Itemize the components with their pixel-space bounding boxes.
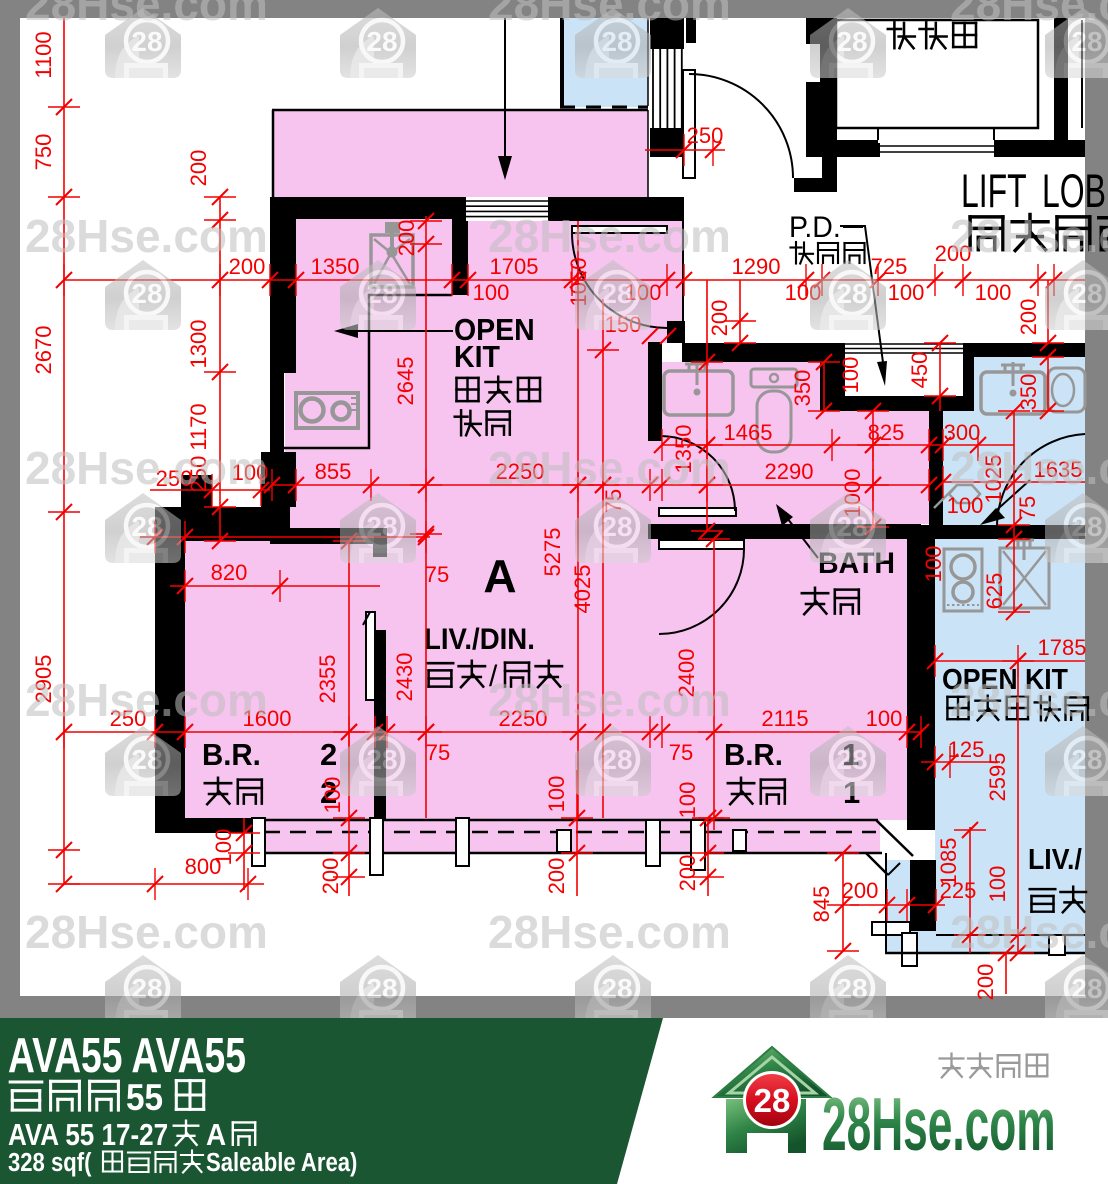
svg-text:75: 75 [669, 740, 693, 765]
svg-text:855: 855 [315, 459, 352, 484]
svg-text:100: 100 [544, 776, 569, 813]
svg-text:100: 100 [473, 280, 510, 305]
svg-text:100: 100 [866, 706, 903, 731]
svg-text:Saleable Area): Saleable Area) [206, 1148, 357, 1177]
svg-text:28Hse.com: 28Hse.com [488, 210, 731, 262]
svg-text:B.R.: B.R. [724, 738, 783, 772]
svg-text:625: 625 [982, 573, 1007, 610]
svg-text:725: 725 [871, 254, 908, 279]
svg-text:28Hse.com: 28Hse.com [488, 906, 731, 958]
svg-text:1085: 1085 [936, 838, 961, 887]
svg-text:100: 100 [985, 866, 1010, 903]
svg-text:LIV./: LIV./ [1028, 843, 1082, 875]
svg-text:1290: 1290 [732, 254, 781, 279]
svg-text:A: A [483, 550, 516, 602]
svg-text:55: 55 [126, 1077, 163, 1118]
svg-text:125: 125 [948, 737, 985, 762]
svg-text:250: 250 [687, 123, 724, 148]
svg-text:750: 750 [31, 134, 56, 171]
svg-text:2: 2 [320, 737, 337, 772]
svg-text:B.R.: B.R. [202, 738, 261, 772]
svg-text:200: 200 [394, 220, 419, 257]
svg-text:100: 100 [947, 493, 984, 518]
svg-text:200: 200 [186, 150, 211, 187]
svg-text:28Hse.com: 28Hse.com [950, 906, 1108, 958]
svg-text:28Hse.com: 28Hse.com [25, 210, 268, 262]
svg-text:845: 845 [809, 886, 834, 923]
svg-text:200: 200 [675, 855, 700, 892]
svg-text:5275: 5275 [540, 528, 565, 577]
svg-text:2290: 2290 [765, 459, 814, 484]
svg-text:LIV./DIN.: LIV./DIN. [424, 623, 535, 656]
svg-text:200: 200 [544, 858, 569, 895]
svg-text:P.D.: P.D. [789, 211, 841, 244]
svg-text:450: 450 [907, 352, 932, 389]
svg-text:2595: 2595 [985, 753, 1010, 802]
svg-text:KIT: KIT [454, 340, 500, 374]
svg-text:28Hse.com: 28Hse.com [950, 210, 1108, 262]
svg-text:100: 100 [211, 829, 236, 866]
svg-text:28Hse.com: 28Hse.com [25, 674, 268, 726]
svg-text:28Hse.com: 28Hse.com [488, 442, 731, 494]
svg-text:100: 100 [888, 280, 925, 305]
svg-text:100: 100 [838, 357, 863, 394]
svg-text:100: 100 [975, 280, 1012, 305]
svg-text:820: 820 [211, 560, 248, 585]
svg-text:75: 75 [1015, 496, 1040, 520]
svg-text:A: A [206, 1118, 226, 1153]
svg-text:75: 75 [425, 562, 449, 587]
svg-text:2355: 2355 [315, 655, 340, 704]
svg-text:350: 350 [790, 370, 815, 407]
svg-text:200: 200 [973, 964, 998, 1001]
svg-text:2430: 2430 [392, 653, 417, 702]
svg-text:1100: 1100 [31, 31, 56, 78]
svg-text:28Hse.com: 28Hse.com [822, 1083, 1056, 1167]
svg-text:4025: 4025 [570, 565, 595, 614]
svg-text:1300: 1300 [186, 320, 211, 369]
svg-text:100: 100 [675, 782, 700, 819]
svg-text:28Hse.com: 28Hse.com [950, 442, 1108, 494]
svg-text:328 sqf(: 328 sqf( [8, 1148, 91, 1177]
svg-text:1350: 1350 [311, 254, 360, 279]
svg-text:200: 200 [842, 878, 879, 903]
svg-text:AVA55 AVA55: AVA55 AVA55 [8, 1029, 246, 1083]
svg-text:2115: 2115 [761, 706, 808, 731]
svg-text:100: 100 [921, 546, 946, 583]
svg-text:2645: 2645 [393, 357, 418, 406]
svg-text:1785: 1785 [1038, 635, 1087, 660]
svg-text:28Hse.com: 28Hse.com [25, 906, 268, 958]
svg-text:2670: 2670 [31, 326, 56, 375]
svg-text:200: 200 [707, 300, 732, 337]
svg-text:28Hse.com: 28Hse.com [488, 674, 731, 726]
svg-text:350: 350 [1016, 374, 1041, 411]
svg-text:28Hse.com: 28Hse.com [950, 674, 1108, 726]
svg-text:28: 28 [754, 1082, 791, 1119]
svg-text:200: 200 [1016, 299, 1041, 336]
svg-text:75: 75 [426, 740, 450, 765]
svg-text:200: 200 [318, 858, 343, 895]
svg-text:28Hse.com: 28Hse.com [25, 442, 268, 494]
